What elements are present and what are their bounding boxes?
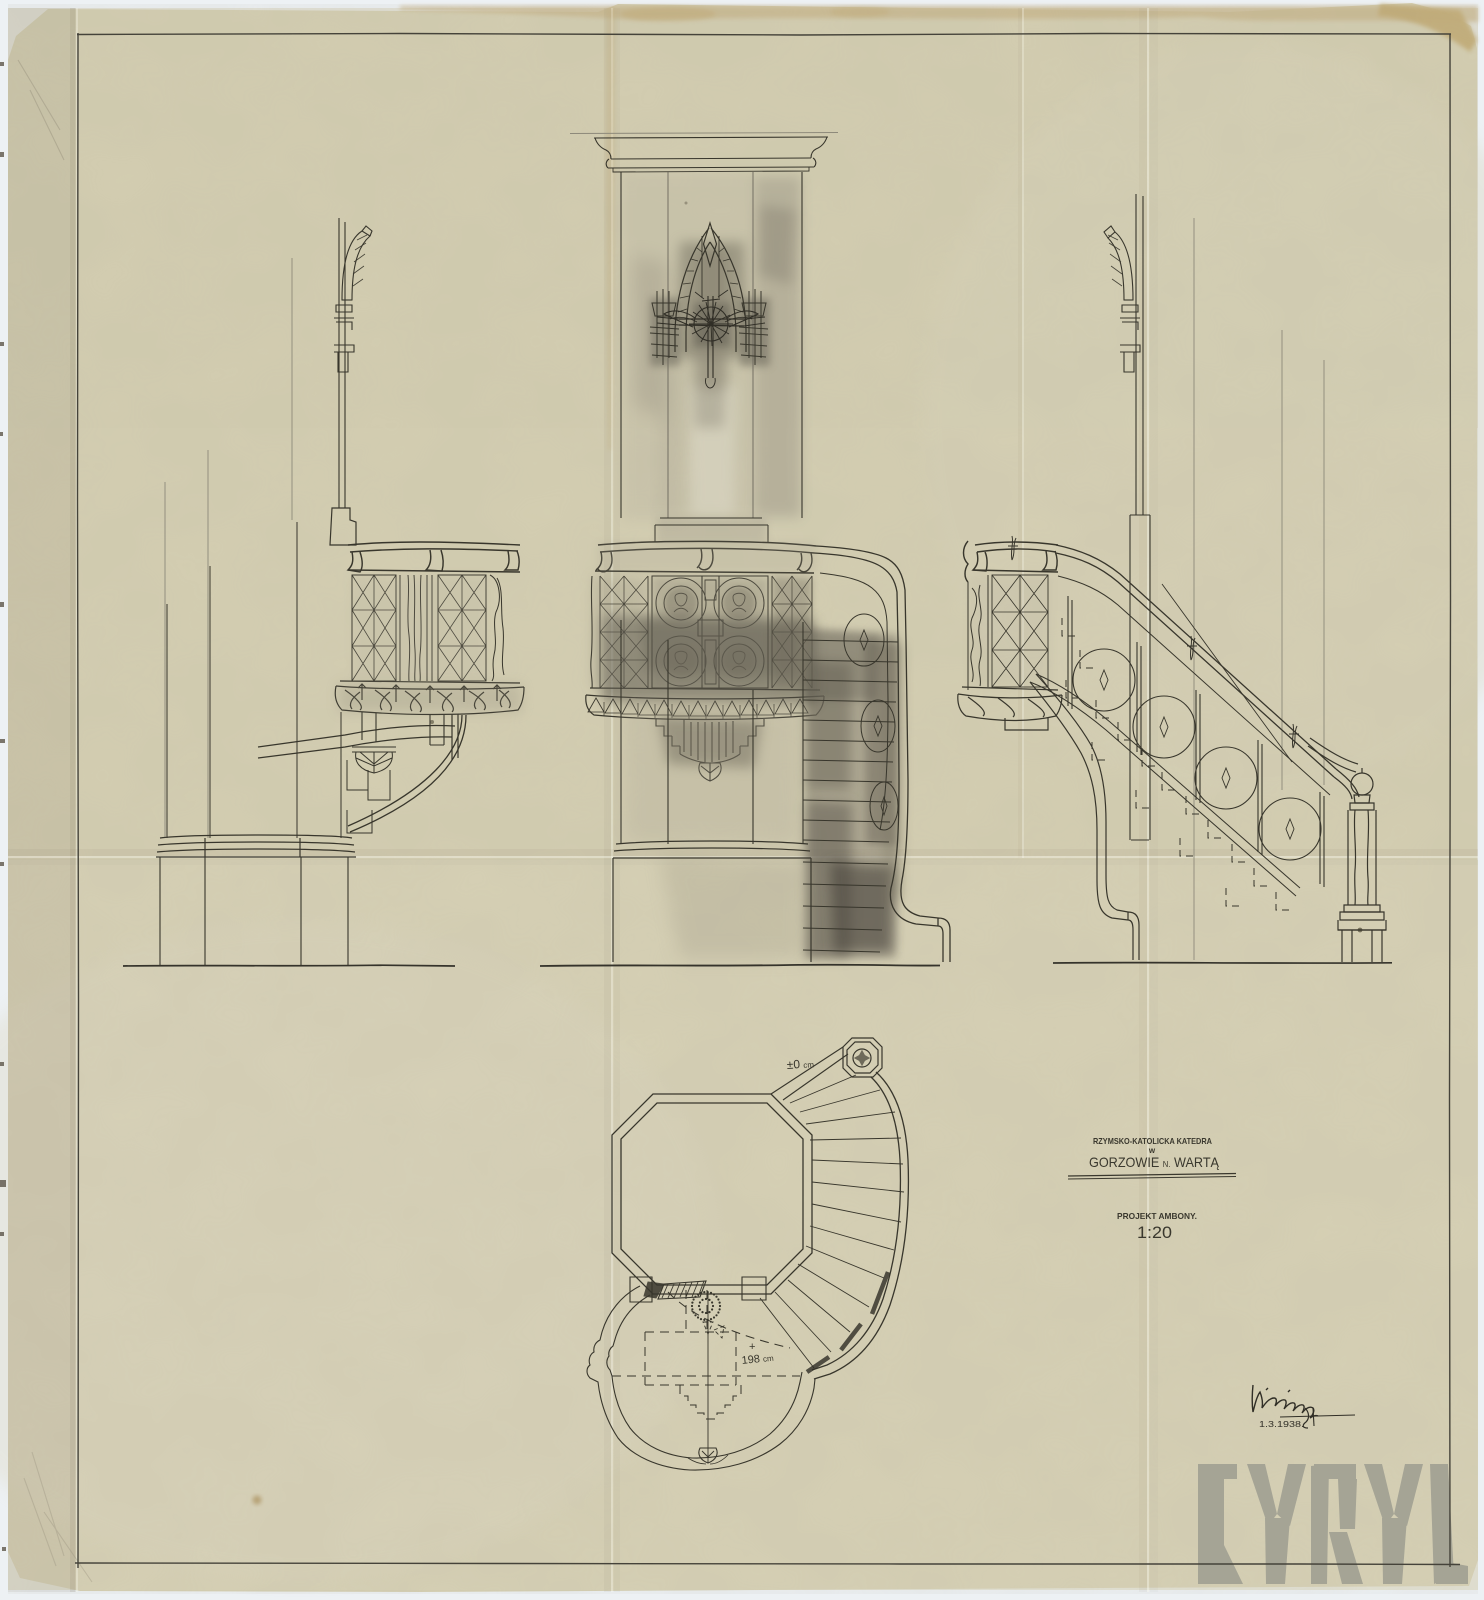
svg-text:1.3.1938.: 1.3.1938. [1259, 1419, 1304, 1429]
svg-text:GORZOWIE N. WARTĄ: GORZOWIE N. WARTĄ [1089, 1154, 1220, 1170]
svg-text:PROJEKT AMBONY.: PROJEKT AMBONY. [1117, 1211, 1197, 1221]
svg-text:+: + [749, 1341, 755, 1353]
svg-text:1:20: 1:20 [1137, 1223, 1172, 1242]
svg-text:RZYMSKO-KATOLICKA KATEDRA: RZYMSKO-KATOLICKA KATEDRA [1093, 1136, 1212, 1146]
